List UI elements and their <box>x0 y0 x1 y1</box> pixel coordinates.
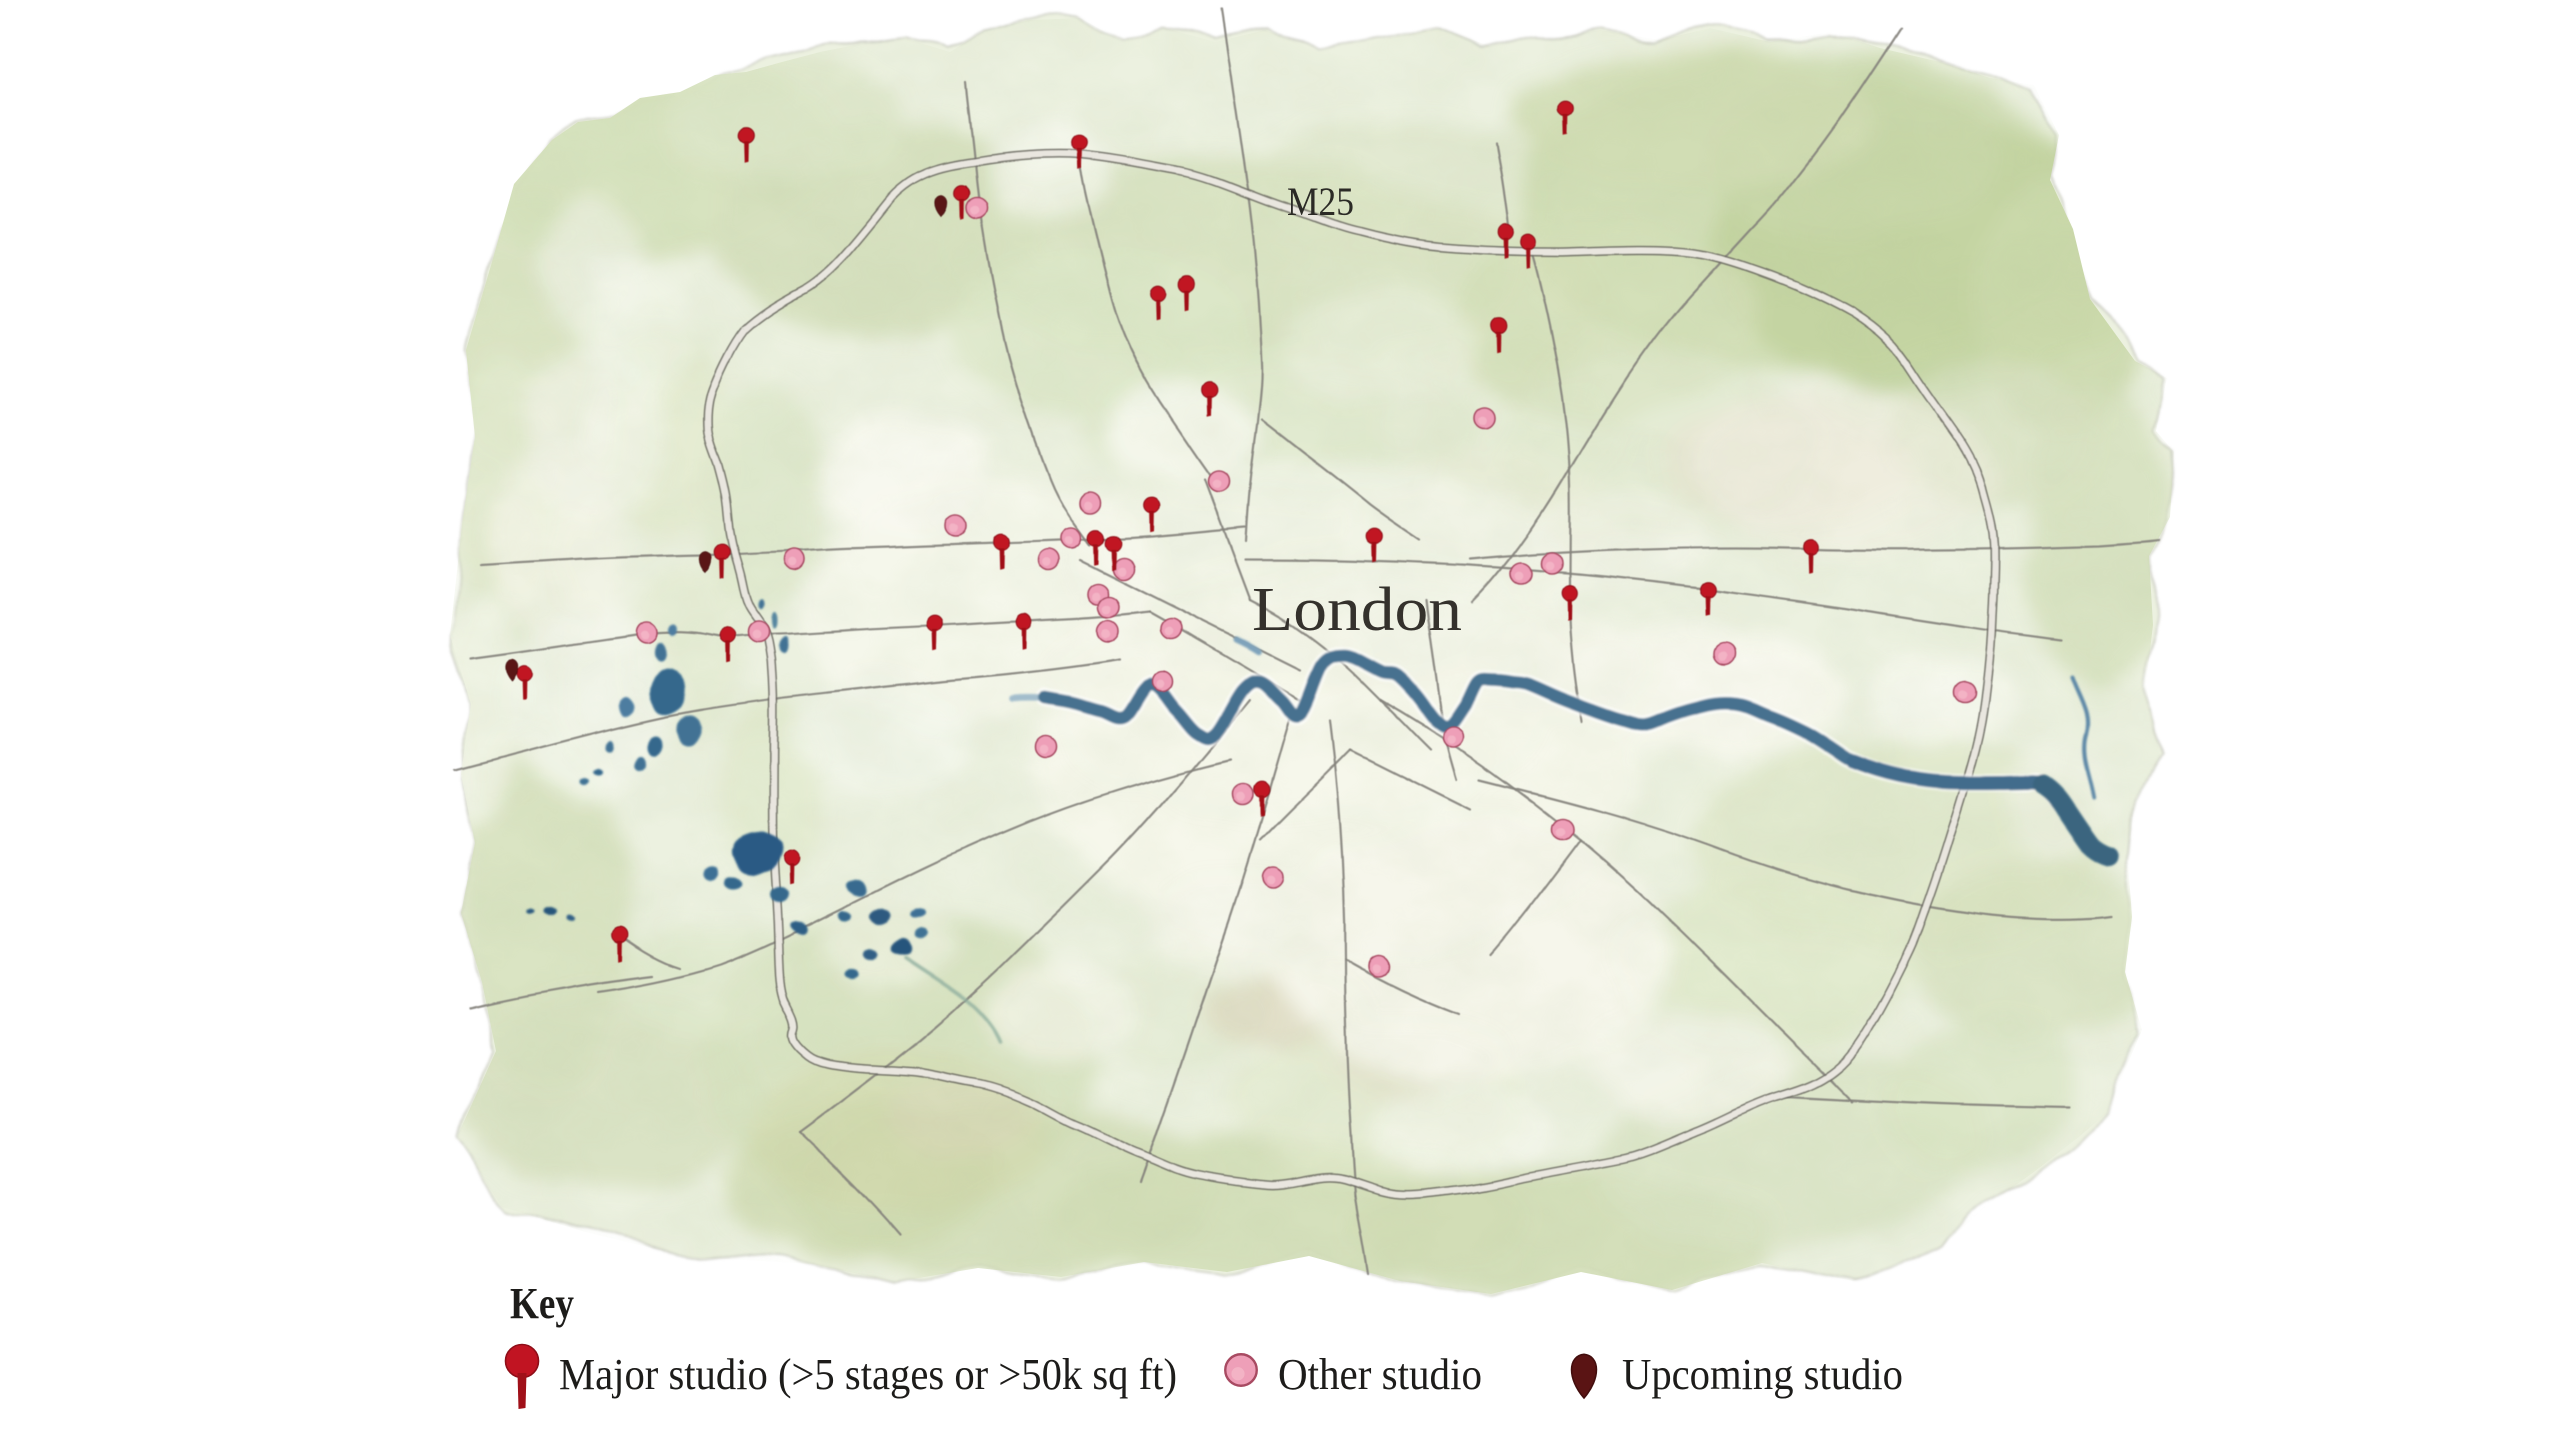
svg-text:M25: M25 <box>1287 179 1354 224</box>
svg-text:Upcoming studio: Upcoming studio <box>1622 1350 1903 1399</box>
svg-text:Major studio (>5 stages or >50: Major studio (>5 stages or >50k sq ft) <box>559 1350 1177 1399</box>
svg-text:London: London <box>1252 576 1462 644</box>
svg-text:Other studio: Other studio <box>1278 1350 1482 1399</box>
svg-text:Key: Key <box>510 1279 574 1328</box>
